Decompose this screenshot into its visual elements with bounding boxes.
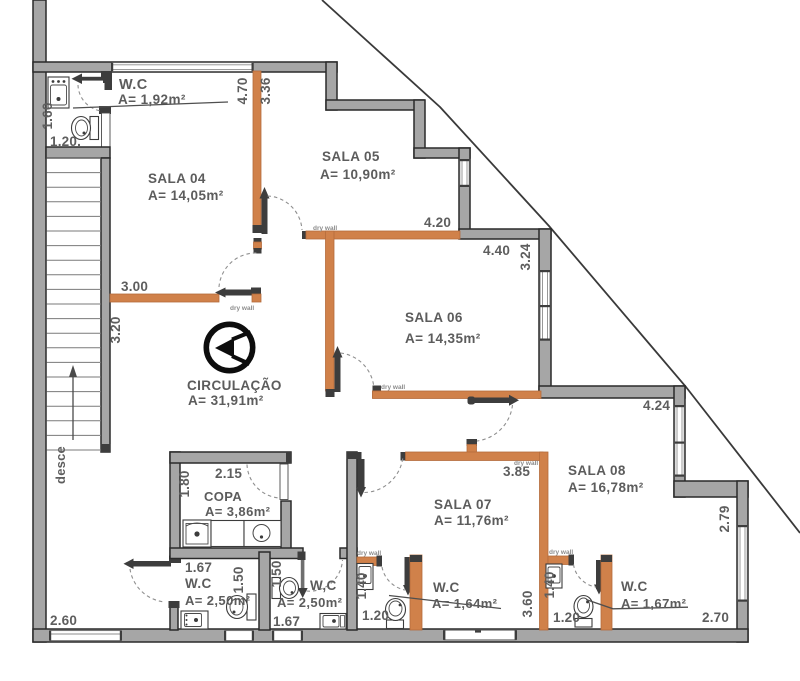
svg-text:1.20: 1.20 [553,610,580,625]
svg-text:A= 16,78m²: A= 16,78m² [568,480,644,495]
svg-text:1.67: 1.67 [273,614,300,629]
svg-text:1.20: 1.20 [362,608,389,623]
svg-text:dry wall: dry wall [230,305,254,312]
svg-text:dry wall: dry wall [357,550,381,557]
svg-text:SALA 07: SALA 07 [434,497,492,512]
svg-text:W.C: W.C [185,576,212,591]
svg-text:2.70: 2.70 [702,610,729,625]
svg-text:2.60: 2.60 [50,613,77,628]
svg-text:dry wall: dry wall [514,460,538,467]
svg-text:2.79: 2.79 [717,505,732,532]
svg-text:W.C: W.C [621,579,648,594]
svg-text:3.00: 3.00 [121,279,148,294]
svg-text:A= 31,91m²: A= 31,91m² [188,393,264,408]
svg-text:SALA 06: SALA 06 [405,310,463,325]
svg-text:3.20: 3.20 [108,316,123,343]
svg-text:2.15: 2.15 [215,466,242,481]
svg-text:4.40: 4.40 [483,243,510,258]
svg-text:1.80: 1.80 [177,470,192,497]
svg-text:3.36: 3.36 [258,77,273,104]
svg-text:SALA 08: SALA 08 [568,463,626,478]
svg-text:A= 1,92m²: A= 1,92m² [118,92,186,107]
svg-text:A= 14,05m²: A= 14,05m² [148,188,224,203]
svg-text:A= 10,90m²: A= 10,90m² [320,167,396,182]
svg-text:A= 3,86m²: A= 3,86m² [205,504,271,519]
svg-text:A= 1,64m²: A= 1,64m² [432,596,498,611]
svg-text:A= 2,50m²: A= 2,50m² [277,595,343,610]
svg-text:1.50: 1.50 [269,560,284,587]
svg-text:desce: desce [53,446,68,484]
svg-text:W,C: W,C [310,578,337,593]
svg-text:CIRCULAÇÃO: CIRCULAÇÃO [187,378,282,393]
svg-text:A= 11,76m²: A= 11,76m² [434,513,509,528]
svg-text:1.67: 1.67 [185,560,212,575]
svg-text:1.20.: 1.20. [50,134,81,149]
svg-text:A= 14,35m²: A= 14,35m² [405,331,481,346]
svg-text:W.C: W.C [119,77,148,93]
svg-text:dry wall: dry wall [549,549,573,556]
svg-text:3.60: 3.60 [520,590,535,617]
svg-text:SALA 04: SALA 04 [148,171,206,186]
svg-text:A= 1,67m²: A= 1,67m² [621,596,687,611]
svg-text:4.24: 4.24 [643,398,670,413]
svg-text:1.40: 1.40 [542,571,557,598]
svg-text:1.40: 1.40 [354,572,369,599]
svg-text:1.60: 1.60 [40,102,55,129]
svg-text:dry wall: dry wall [381,384,405,391]
svg-text:4.70: 4.70 [235,77,250,104]
svg-text:COPA: COPA [204,489,242,504]
svg-text:dry wall: dry wall [313,225,337,232]
svg-text:4.20: 4.20 [424,215,451,230]
svg-text:3.24: 3.24 [518,243,533,270]
svg-text:W.C: W.C [433,580,460,595]
svg-text:A= 2,50m²: A= 2,50m² [185,593,251,608]
svg-text:1.50: 1.50 [231,566,246,593]
svg-text:SALA 05: SALA 05 [322,149,380,164]
